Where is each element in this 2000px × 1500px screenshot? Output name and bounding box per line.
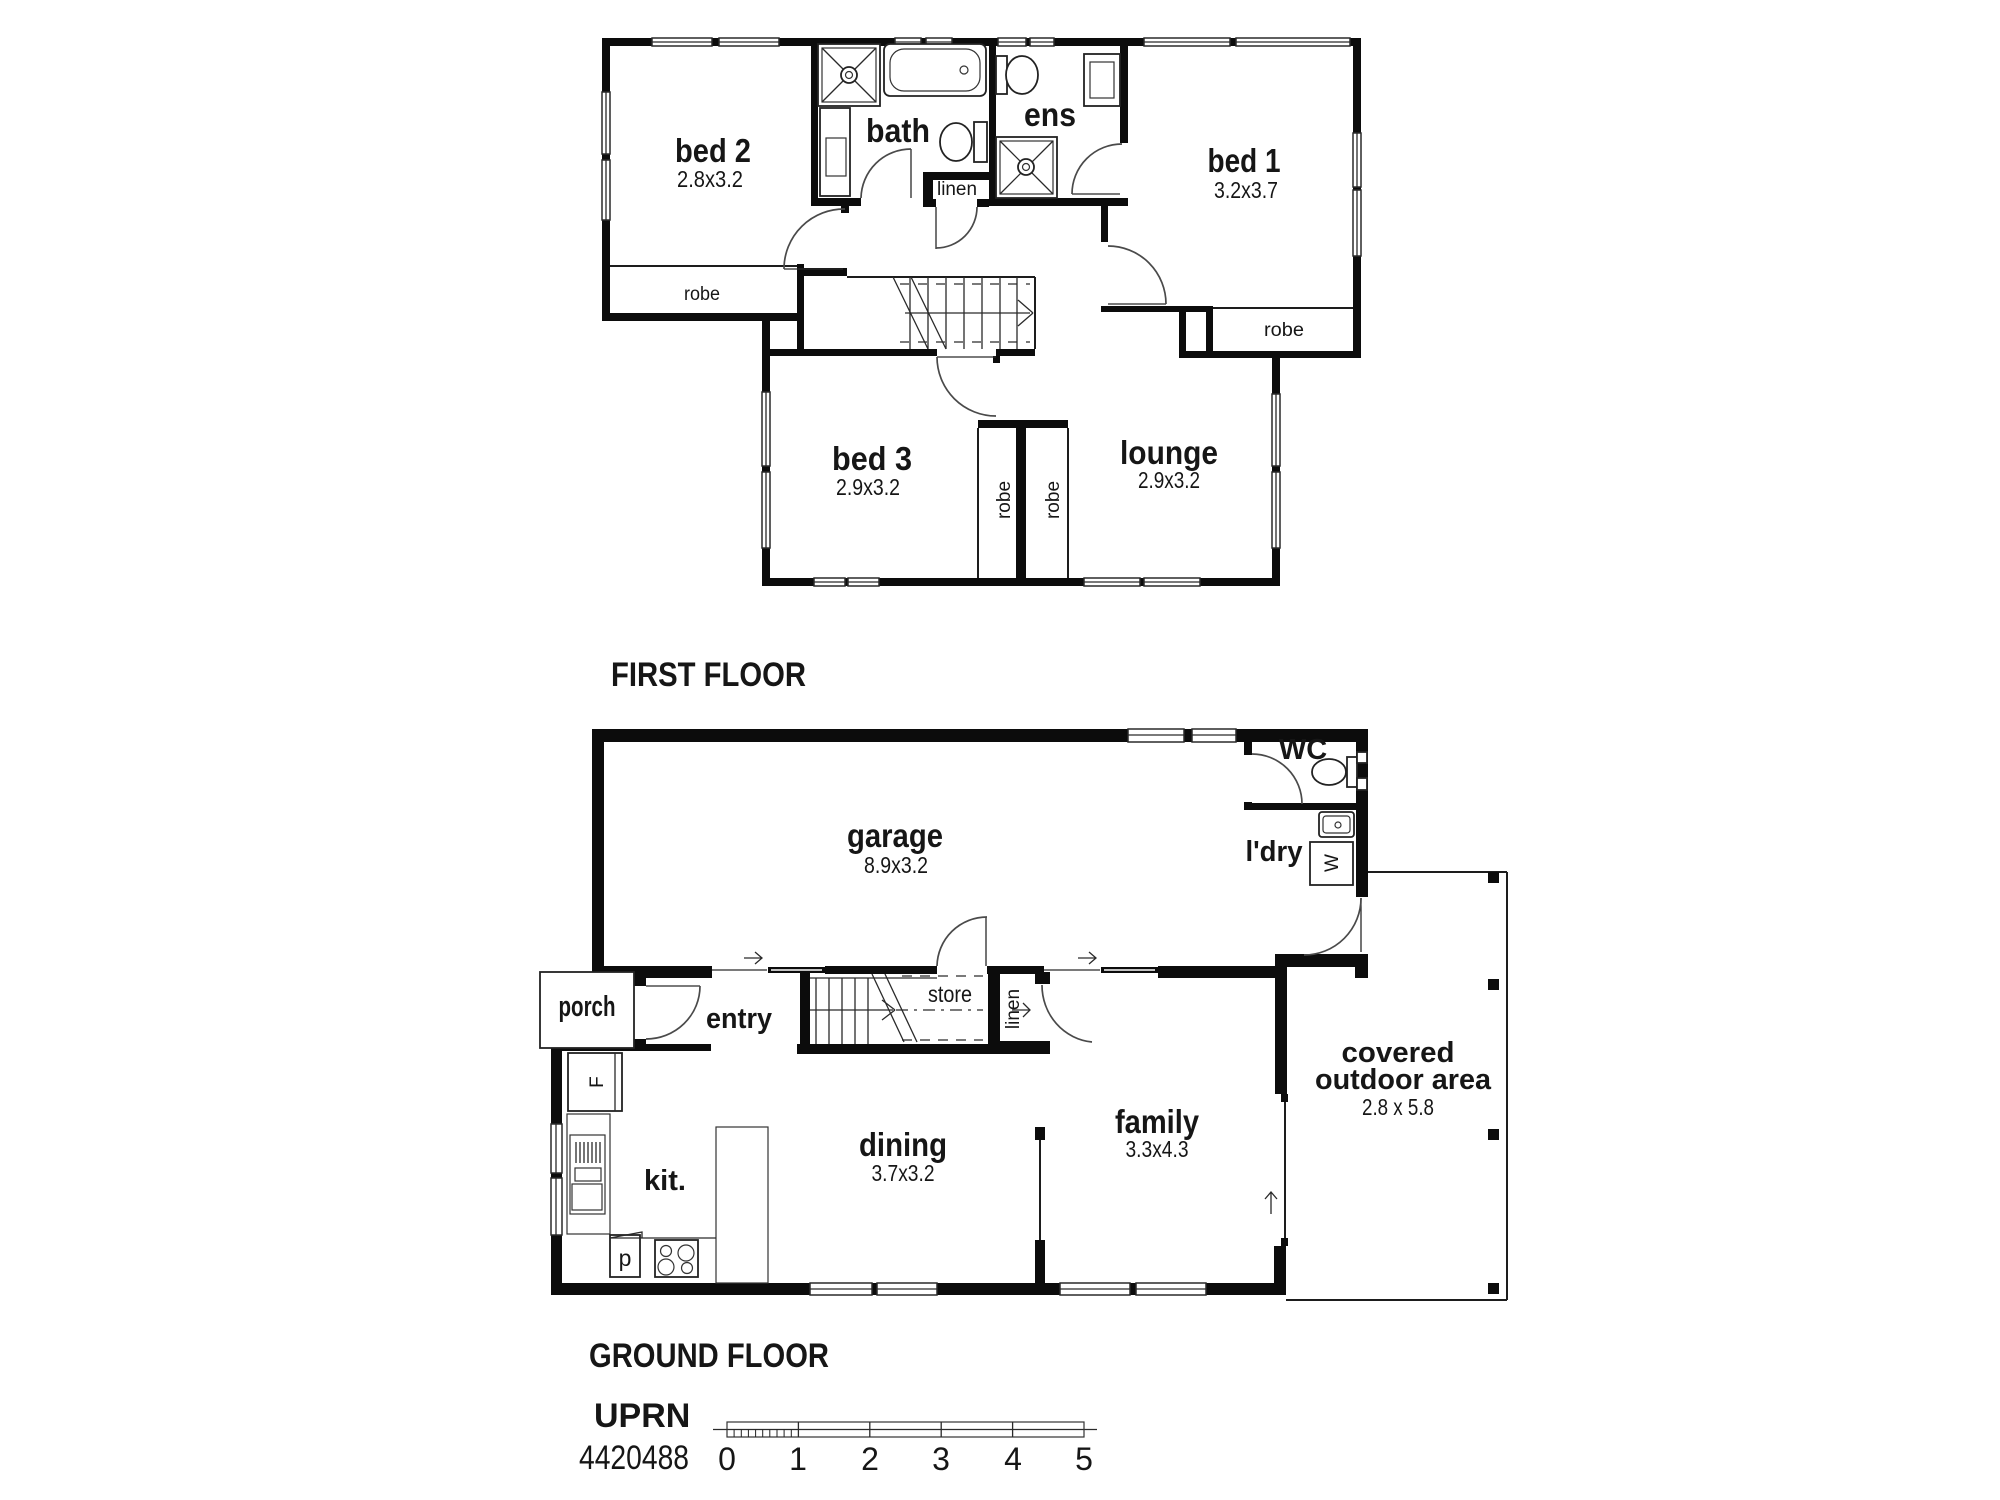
svg-text:linen: linen xyxy=(937,179,977,200)
svg-text:p: p xyxy=(619,1245,632,1271)
svg-text:bed 3: bed 3 xyxy=(832,440,912,477)
svg-text:2.8x3.2: 2.8x3.2 xyxy=(677,166,743,192)
svg-text:dining: dining xyxy=(859,1126,947,1163)
svg-text:4420488: 4420488 xyxy=(579,1439,689,1477)
svg-text:bed 2: bed 2 xyxy=(675,132,751,169)
svg-text:l'dry: l'dry xyxy=(1246,836,1303,868)
svg-text:linen: linen xyxy=(1003,989,1024,1029)
svg-text:entry: entry xyxy=(706,1003,772,1035)
svg-text:1: 1 xyxy=(789,1441,807,1477)
svg-text:robe: robe xyxy=(1264,320,1304,341)
svg-text:robe: robe xyxy=(1043,481,1064,519)
svg-text:0: 0 xyxy=(718,1441,736,1477)
svg-text:4: 4 xyxy=(1004,1441,1022,1477)
svg-text:bed 1: bed 1 xyxy=(1208,142,1281,179)
svg-text:ens: ens xyxy=(1024,96,1076,133)
svg-text:porch: porch xyxy=(559,991,616,1023)
svg-text:GROUND FLOOR: GROUND FLOOR xyxy=(589,1337,829,1375)
svg-text:WC: WC xyxy=(1279,734,1327,766)
svg-text:2.8 x 5.8: 2.8 x 5.8 xyxy=(1362,1094,1434,1120)
svg-text:2.9x3.2: 2.9x3.2 xyxy=(1138,467,1200,493)
svg-text:robe: robe xyxy=(994,481,1015,519)
svg-text:2.9x3.2: 2.9x3.2 xyxy=(836,474,900,500)
svg-text:3.7x3.2: 3.7x3.2 xyxy=(872,1160,935,1186)
svg-text:5: 5 xyxy=(1075,1441,1093,1477)
svg-text:outdoor area: outdoor area xyxy=(1315,1064,1492,1096)
svg-text:FIRST FLOOR: FIRST FLOOR xyxy=(611,656,806,694)
svg-text:UPRN: UPRN xyxy=(594,1397,690,1435)
svg-text:W: W xyxy=(1322,854,1343,872)
svg-text:store: store xyxy=(928,981,972,1007)
svg-text:8.9x3.2: 8.9x3.2 xyxy=(864,852,928,878)
svg-text:2: 2 xyxy=(861,1441,879,1477)
svg-text:lounge: lounge xyxy=(1120,434,1218,471)
svg-text:robe: robe xyxy=(684,284,720,305)
svg-text:3.2x3.7: 3.2x3.7 xyxy=(1214,177,1278,203)
svg-text:kit.: kit. xyxy=(644,1165,686,1197)
svg-text:garage: garage xyxy=(847,817,943,854)
svg-text:3: 3 xyxy=(932,1441,950,1477)
svg-text:bath: bath xyxy=(866,112,930,149)
svg-text:F: F xyxy=(587,1076,608,1088)
svg-text:family: family xyxy=(1115,1103,1200,1140)
svg-text:3.3x4.3: 3.3x4.3 xyxy=(1126,1136,1189,1162)
